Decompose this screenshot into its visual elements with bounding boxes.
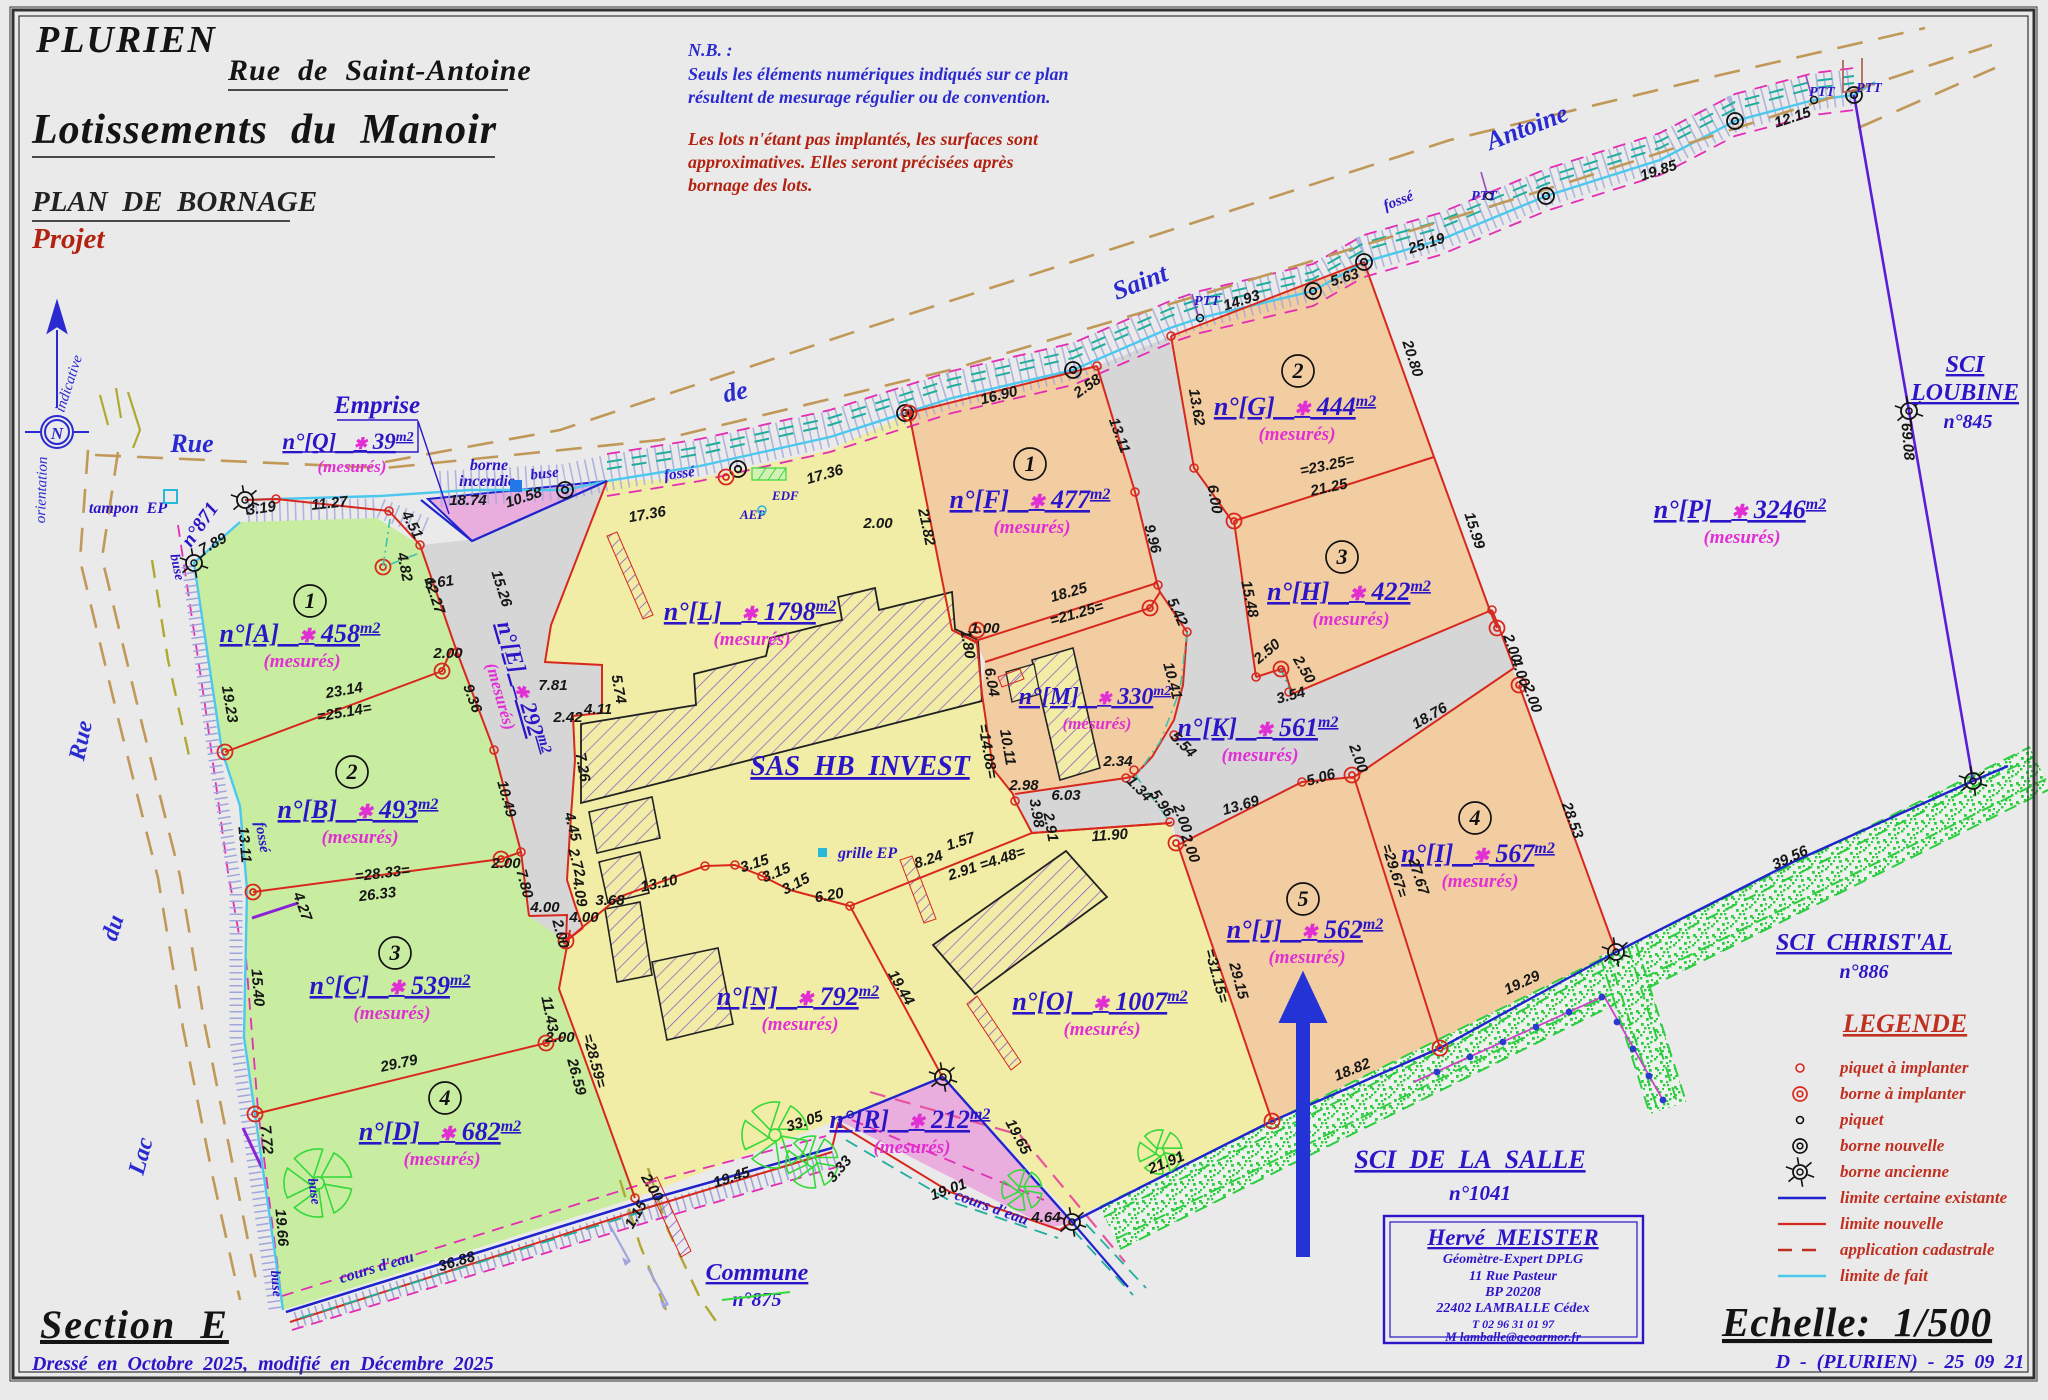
svg-text:11 Rue Pasteur: 11 Rue Pasteur [1469, 1269, 1557, 1284]
svg-text:(mesurés): (mesurés) [318, 457, 387, 476]
svg-text:2.00: 2.00 [490, 855, 521, 872]
svg-text:SAS HB INVEST: SAS HB INVEST [750, 751, 971, 782]
svg-text:n°875: n°875 [732, 1289, 781, 1311]
svg-text:Commune: Commune [706, 1260, 809, 1286]
svg-text:n°1041: n°1041 [1449, 1181, 1511, 1205]
svg-text:LEGENDE: LEGENDE [1842, 1009, 1967, 1038]
svg-text:2.42: 2.42 [552, 709, 583, 726]
svg-text:buse: buse [267, 1270, 284, 1298]
svg-text:buse: buse [530, 465, 560, 484]
svg-text:borne nouvelle: borne nouvelle [1840, 1136, 1945, 1155]
svg-text:SCI: SCI [1946, 352, 1986, 378]
svg-text:2: 2 [346, 759, 358, 784]
svg-text:(mesurés): (mesurés) [1221, 745, 1298, 766]
svg-text:4.00: 4.00 [529, 899, 560, 916]
svg-text:Emprise: Emprise [333, 392, 420, 419]
svg-text:n°845: n°845 [1943, 411, 1992, 433]
svg-text:n°[Q] ✱ 39m2: n°[Q] ✱ 39m2 [282, 429, 413, 454]
svg-text:(mesurés): (mesurés) [1703, 527, 1780, 548]
svg-text:PTT: PTT [1471, 189, 1498, 204]
svg-text:(mesurés): (mesurés) [263, 651, 340, 672]
svg-text:Section E: Section E [40, 1302, 229, 1347]
svg-text:3.68: 3.68 [595, 892, 625, 909]
svg-text:(mesurés): (mesurés) [761, 1014, 838, 1035]
svg-text:2: 2 [1292, 358, 1304, 383]
svg-text:Echelle: 1/500: Echelle: 1/500 [1721, 1299, 1992, 1345]
svg-text:7.72: 7.72 [257, 1124, 277, 1155]
svg-text:Rue: Rue [169, 429, 213, 458]
svg-text:limite certaine existante: limite certaine existante [1840, 1188, 2008, 1207]
svg-text:piquet à implanter: piquet à implanter [1838, 1058, 1969, 1077]
svg-text:(mesurés): (mesurés) [1268, 947, 1345, 968]
svg-text:D - (PLURIEN) - 25 09 21: D - (PLURIEN) - 25 09 21 [1775, 1351, 2025, 1373]
svg-text:incendie: incendie [459, 473, 515, 490]
svg-text:13.11: 13.11 [234, 826, 254, 864]
svg-text:6.03: 6.03 [1051, 787, 1081, 804]
svg-text:piquet: piquet [1838, 1110, 1885, 1129]
svg-text:(mesurés): (mesurés) [1063, 714, 1132, 733]
svg-text:5: 5 [1298, 886, 1309, 911]
svg-text:PTT: PTT [1194, 294, 1221, 309]
svg-text:4.11: 4.11 [583, 701, 612, 718]
svg-text:n°886: n°886 [1839, 961, 1888, 983]
svg-text:15.40: 15.40 [247, 968, 267, 1008]
svg-text:n°[M] ✱ 330m2: n°[M] ✱ 330m2 [1019, 684, 1171, 710]
svg-text:approximatives. Elles seront p: approximatives. Elles seront précisées a… [688, 152, 1013, 172]
svg-text:2.34: 2.34 [1102, 753, 1133, 770]
svg-text:Projet: Projet [31, 223, 105, 255]
svg-text:Rue de Saint-Antoine: Rue de Saint-Antoine [227, 54, 532, 87]
svg-text:SCI DE LA SALLE: SCI DE LA SALLE [1354, 1145, 1585, 1174]
svg-text:résultent de mesurage régulier: résultent de mesurage régulier ou de con… [688, 87, 1051, 107]
svg-text:1: 1 [1025, 451, 1036, 476]
svg-text:grille EP: grille EP [837, 845, 897, 862]
svg-text:limite de fait: limite de fait [1840, 1266, 1929, 1285]
svg-text:N.B. :: N.B. : [687, 40, 733, 60]
svg-text:2.00: 2.00 [544, 1029, 575, 1046]
svg-text:orientation: orientation [33, 456, 51, 523]
svg-text:(mesurés): (mesurés) [353, 1003, 430, 1024]
svg-text:BP 20208: BP 20208 [1484, 1285, 1541, 1300]
svg-text:11.90: 11.90 [1091, 826, 1129, 846]
svg-text:borne ancienne: borne ancienne [1840, 1162, 1950, 1181]
svg-text:bornage des lots.: bornage des lots. [688, 175, 813, 195]
svg-text:PLURIEN: PLURIEN [35, 19, 217, 61]
svg-text:18.74: 18.74 [449, 492, 487, 509]
svg-text:(mesurés): (mesurés) [1441, 871, 1518, 892]
svg-text:(mesurés): (mesurés) [1063, 1019, 1140, 1040]
svg-text:PTT: PTT [1809, 85, 1836, 100]
svg-text:(mesurés): (mesurés) [1312, 609, 1389, 630]
svg-text:application cadastrale: application cadastrale [1840, 1240, 1995, 1259]
svg-text:19.66: 19.66 [271, 1208, 291, 1248]
svg-text:1: 1 [305, 588, 316, 613]
svg-text:Les lots n'étant pas implantés: Les lots n'étant pas implantés, les surf… [687, 129, 1039, 149]
svg-text:EDF: EDF [771, 488, 799, 503]
svg-text:69.08: 69.08 [1897, 422, 1917, 462]
svg-text:N: N [50, 424, 64, 443]
svg-text:2.00: 2.00 [432, 645, 463, 662]
svg-text:M lamballe@geoarmor.fr: M lamballe@geoarmor.fr [1444, 1329, 1582, 1344]
svg-text:(mesurés): (mesurés) [713, 629, 790, 650]
svg-text:2.00: 2.00 [862, 515, 893, 532]
svg-text:4.64: 4.64 [1030, 1209, 1061, 1226]
svg-text:limite nouvelle: limite nouvelle [1840, 1214, 1944, 1233]
svg-text:Géomètre-Expert DPLG: Géomètre-Expert DPLG [1443, 1252, 1583, 1267]
svg-text:(mesurés): (mesurés) [873, 1137, 950, 1158]
svg-text:(mesurés): (mesurés) [1258, 424, 1335, 445]
svg-text:PTT: PTT [1856, 81, 1883, 96]
svg-text:PLAN DE BORNAGE: PLAN DE BORNAGE [31, 186, 317, 218]
svg-text:(mesurés): (mesurés) [321, 827, 398, 848]
svg-text:n°[H] ✱ 422m2: n°[H] ✱ 422m2 [1267, 577, 1431, 606]
svg-text:(mesurés): (mesurés) [993, 517, 1070, 538]
svg-text:4: 4 [439, 1085, 451, 1110]
svg-text:Seuls les éléments numériques: Seuls les éléments numériques indiqués s… [688, 64, 1069, 84]
svg-text:3: 3 [1336, 544, 1348, 569]
svg-text:22402 LAMBALLE Cédex: 22402 LAMBALLE Cédex [1435, 1301, 1589, 1316]
svg-text:tampon EP: tampon EP [89, 500, 167, 517]
svg-text:Lotissements du Manoir: Lotissements du Manoir [31, 107, 497, 153]
svg-text:4.00: 4.00 [568, 909, 599, 926]
svg-text:(mesurés): (mesurés) [403, 1149, 480, 1170]
svg-text:4: 4 [1469, 805, 1481, 830]
svg-text:borne à implanter: borne à implanter [1840, 1084, 1966, 1103]
svg-text:borne: borne [470, 457, 508, 474]
svg-text:2.98: 2.98 [1008, 777, 1039, 794]
svg-text:LOUBINE: LOUBINE [1910, 380, 2019, 406]
svg-text:3: 3 [389, 940, 401, 965]
svg-text:SCI CHRIST'AL: SCI CHRIST'AL [1776, 930, 1952, 956]
svg-text:Hervé MEISTER: Hervé MEISTER [1426, 1225, 1598, 1250]
svg-text:7.81: 7.81 [538, 677, 567, 694]
